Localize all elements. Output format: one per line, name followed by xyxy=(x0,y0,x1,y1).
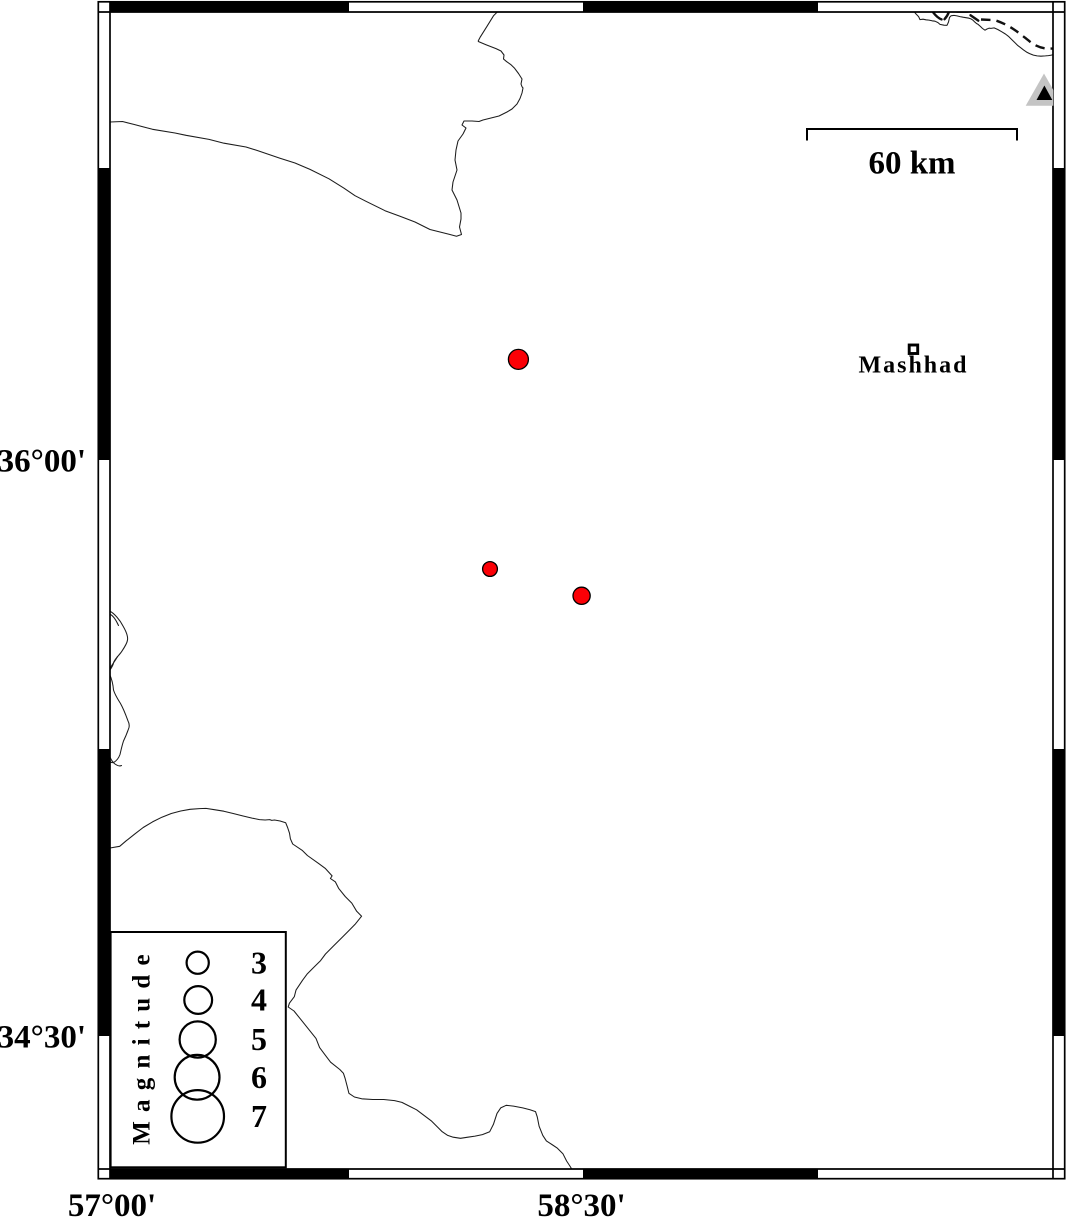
svg-text:3: 3 xyxy=(251,944,267,980)
svg-text:Magnitude: Magnitude xyxy=(129,945,156,1144)
svg-text:7: 7 xyxy=(251,1098,267,1134)
svg-text:6: 6 xyxy=(251,1059,267,1095)
svg-text:58°30': 58°30' xyxy=(537,1188,625,1218)
svg-text:34°30': 34°30' xyxy=(0,1020,86,1056)
svg-text:57°00': 57°00' xyxy=(68,1188,156,1218)
svg-text:36°00': 36°00' xyxy=(0,444,86,480)
svg-text:4: 4 xyxy=(251,982,267,1018)
svg-text:Mashhad: Mashhad xyxy=(858,353,968,379)
svg-text:60 km: 60 km xyxy=(868,146,955,182)
svg-text:5: 5 xyxy=(251,1021,267,1057)
